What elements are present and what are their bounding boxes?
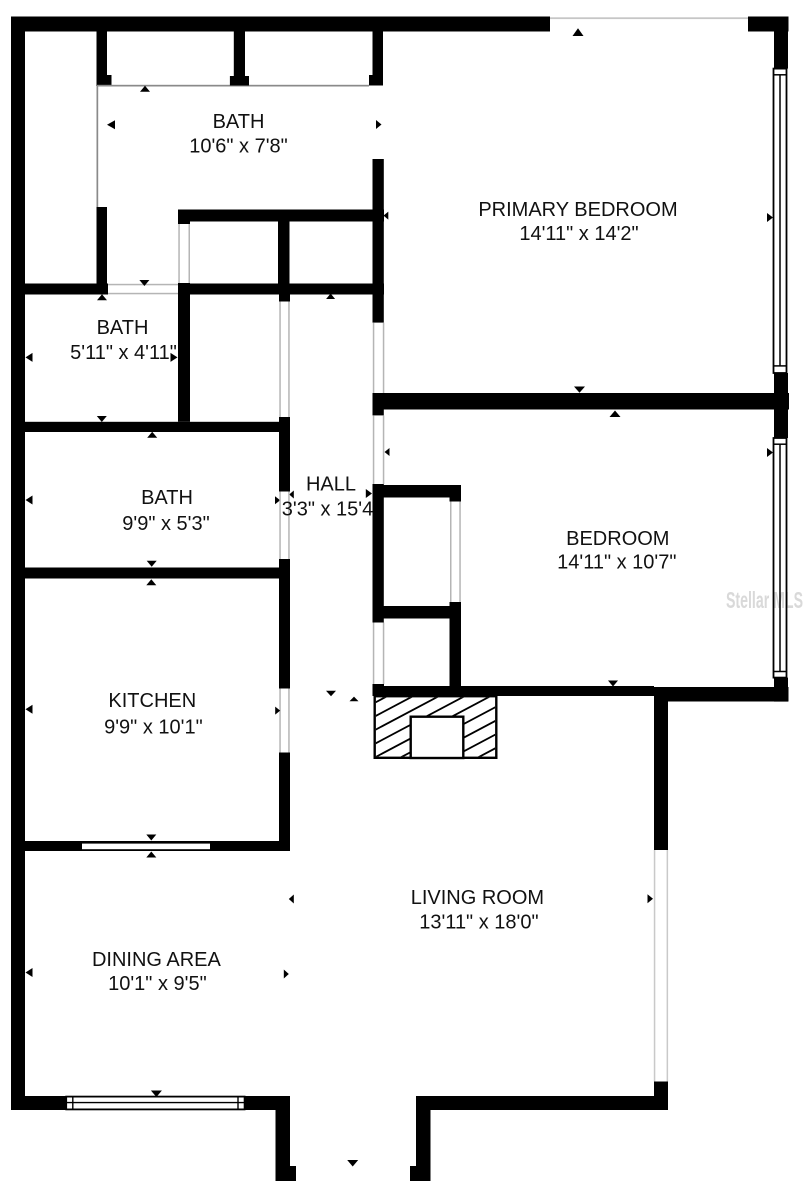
svg-text:5'11" x 4'11": 5'11" x 4'11" bbox=[70, 342, 177, 364]
svg-text:BATH: BATH bbox=[141, 487, 193, 509]
svg-text:HALL: HALL bbox=[306, 474, 356, 496]
svg-text:KITCHEN: KITCHEN bbox=[108, 690, 196, 712]
svg-text:9'9" x 10'1": 9'9" x 10'1" bbox=[104, 717, 203, 739]
svg-text:Stellar MLS: Stellar MLS bbox=[726, 587, 803, 613]
svg-text:9'9" x 5'3": 9'9" x 5'3" bbox=[122, 513, 209, 535]
svg-text:PRIMARY BEDROOM: PRIMARY BEDROOM bbox=[478, 199, 677, 221]
svg-text:BEDROOM: BEDROOM bbox=[566, 528, 669, 550]
svg-text:BATH: BATH bbox=[97, 317, 149, 339]
svg-text:BATH: BATH bbox=[213, 111, 265, 133]
svg-text:14'11" x 10'7": 14'11" x 10'7" bbox=[557, 552, 676, 574]
svg-text:3'3" x 15'4: 3'3" x 15'4 bbox=[282, 499, 373, 521]
svg-text:14'11" x 14'2": 14'11" x 14'2" bbox=[519, 223, 638, 245]
svg-text:10'1" x 9'5": 10'1" x 9'5" bbox=[108, 973, 207, 995]
svg-text:DINING AREA: DINING AREA bbox=[92, 949, 222, 971]
svg-text:10'6" x 7'8": 10'6" x 7'8" bbox=[189, 135, 288, 157]
svg-text:13'11" x 18'0": 13'11" x 18'0" bbox=[419, 912, 538, 934]
svg-text:LIVING ROOM: LIVING ROOM bbox=[411, 887, 544, 909]
